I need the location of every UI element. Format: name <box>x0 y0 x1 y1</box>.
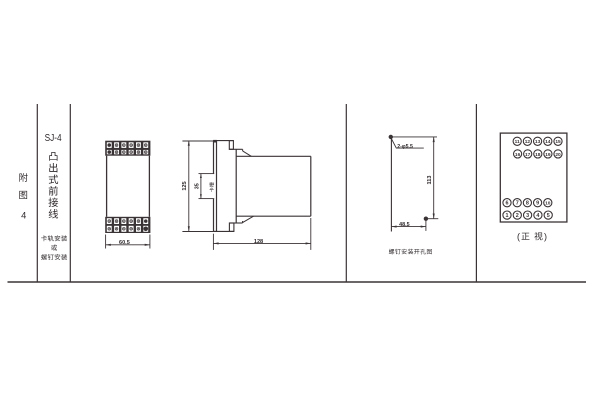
svg-text:125: 125 <box>182 181 188 190</box>
svg-text:19: 19 <box>545 152 551 158</box>
svg-text:10: 10 <box>545 201 551 207</box>
svg-text:48.5: 48.5 <box>399 222 410 228</box>
svg-text:7: 7 <box>516 201 519 207</box>
svg-text:1: 1 <box>506 213 509 219</box>
svg-text:12: 12 <box>525 139 531 145</box>
svg-text:4: 4 <box>536 213 539 219</box>
svg-text:3: 3 <box>526 213 529 219</box>
svg-text:16: 16 <box>515 152 521 158</box>
svg-text:6: 6 <box>506 201 509 207</box>
svg-text:13: 13 <box>535 139 541 145</box>
svg-text:35: 35 <box>194 183 200 189</box>
svg-text:18: 18 <box>535 152 541 158</box>
svg-text:11: 11 <box>515 139 520 145</box>
svg-text:5: 5 <box>547 213 550 219</box>
svg-text:8: 8 <box>526 201 529 207</box>
svg-text:): ) <box>544 232 547 242</box>
svg-text:9: 9 <box>536 201 539 207</box>
svg-text:(: ( <box>517 232 520 242</box>
svg-text:113: 113 <box>427 175 433 184</box>
svg-text:20: 20 <box>555 152 561 158</box>
svg-text:60.5: 60.5 <box>119 240 130 246</box>
svg-text:2: 2 <box>516 213 519 219</box>
svg-text:128: 128 <box>254 239 263 245</box>
svg-text:17: 17 <box>525 152 531 158</box>
svg-text:SJ-4: SJ-4 <box>45 133 62 144</box>
svg-text:14: 14 <box>545 139 551 145</box>
svg-text:4: 4 <box>21 210 26 220</box>
svg-text:15: 15 <box>555 139 561 145</box>
svg-text:2-φ5.5: 2-φ5.5 <box>397 144 413 150</box>
